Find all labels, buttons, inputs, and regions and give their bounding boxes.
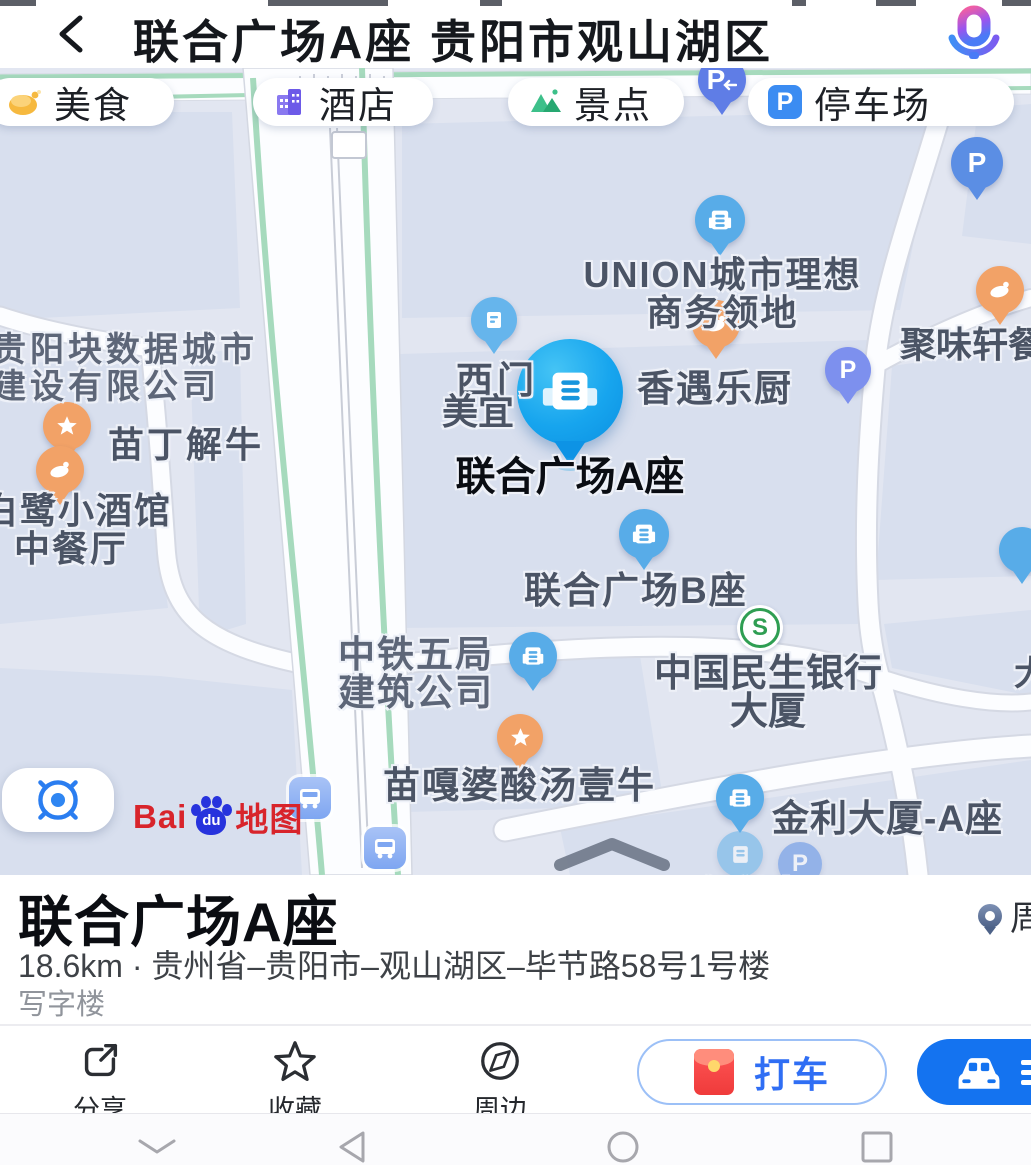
search-query-title[interactable]: 联合广场A座 贵阳市观山湖区 bbox=[133, 6, 773, 72]
hotel-building-icon bbox=[273, 85, 307, 119]
star-glyph bbox=[508, 725, 533, 750]
nearby-shortcut[interactable]: 周 bbox=[978, 891, 1031, 940]
building-glyph bbox=[728, 842, 753, 867]
share-icon bbox=[77, 1038, 123, 1084]
chip-food[interactable]: 美食 bbox=[0, 78, 174, 126]
building-glyph bbox=[630, 520, 658, 548]
route-navigate-button[interactable] bbox=[917, 1039, 1031, 1105]
map-label-miaoding: 苗丁解牛 bbox=[108, 416, 264, 468]
food-glyph bbox=[47, 457, 73, 483]
map-label-union-b: 联合广场B座 bbox=[524, 560, 748, 614]
map-label-jinli-faded: 金利大厦 bbox=[690, 866, 846, 875]
map-label-edge-partial: 大 bbox=[1014, 646, 1031, 695]
poi-pin-miaogapo[interactable] bbox=[497, 714, 543, 760]
map-label-zhongtie-2: 建筑公司 bbox=[338, 662, 494, 716]
android-nav-bar bbox=[0, 1113, 1031, 1165]
building-glyph bbox=[706, 206, 734, 234]
top-edge-artifact bbox=[268, 0, 388, 6]
poi-pin-juweixuan[interactable] bbox=[976, 266, 1024, 314]
poi-pin-union-b[interactable] bbox=[619, 509, 669, 559]
taxi-button[interactable]: 打车 bbox=[637, 1039, 887, 1105]
poi-pin-union[interactable] bbox=[695, 195, 745, 245]
poi-category: 写字楼 bbox=[18, 981, 105, 1023]
top-edge-artifact bbox=[792, 0, 806, 6]
route-text-cut bbox=[1021, 1060, 1031, 1085]
map-label-union-2: 商务领地 bbox=[545, 284, 900, 336]
red-packet-icon bbox=[694, 1049, 734, 1095]
map-label-egret-2: 中餐厅 bbox=[14, 520, 128, 572]
poi-pin-miaoding[interactable] bbox=[43, 402, 91, 450]
search-header: 联合广场A座 贵阳市观山湖区 bbox=[0, 0, 1031, 68]
food-chicken-icon bbox=[6, 85, 42, 119]
map-label-jinli-a: 金利大厦-A座 bbox=[772, 788, 1003, 842]
left-arrow-glyph bbox=[723, 78, 737, 92]
chip-scenic[interactable]: 景点 bbox=[508, 78, 684, 126]
compass-target-icon bbox=[29, 771, 87, 829]
scenic-mountain-icon bbox=[528, 85, 562, 119]
chip-hotel[interactable]: 酒店 bbox=[253, 78, 433, 126]
parking-pin[interactable]: P bbox=[825, 347, 871, 393]
location-pin-icon bbox=[978, 904, 1002, 928]
bus-glyph bbox=[372, 835, 398, 861]
baidu-paw-icon: du bbox=[189, 796, 233, 838]
baidu-maps-logo: Bai du 地图 bbox=[133, 796, 303, 838]
back-icon[interactable] bbox=[48, 10, 96, 58]
nav-hide-button[interactable] bbox=[120, 1122, 194, 1165]
star-icon bbox=[272, 1038, 318, 1084]
nav-home-button[interactable] bbox=[594, 1118, 652, 1165]
voice-mic-icon[interactable] bbox=[942, 4, 1004, 66]
map-label-meiyi: 美宜 bbox=[442, 383, 514, 435]
food-glyph bbox=[987, 277, 1013, 303]
parking-pin[interactable]: P bbox=[951, 137, 1003, 189]
map-canvas[interactable]: P P bbox=[0, 68, 1031, 875]
baidu-maps-app: { "header": { "title": "联合广场A座 贵阳市观山湖区" … bbox=[0, 0, 1031, 1165]
logo-bai: Bai bbox=[133, 798, 187, 836]
poi-pin-zhongtie[interactable] bbox=[509, 632, 557, 680]
map-label-minsheng-2: 大厦 bbox=[648, 680, 888, 735]
action-bar: 分享 收藏 周边 打车 bbox=[0, 1024, 1031, 1115]
parking-p-icon: P bbox=[768, 85, 802, 119]
map-label-main-poi: 联合广场A座 bbox=[425, 444, 715, 502]
chip-parking[interactable]: P 停车场 bbox=[748, 78, 1014, 126]
building-glyph bbox=[520, 643, 546, 669]
top-edge-artifact bbox=[1002, 0, 1031, 6]
nav-recents-button[interactable] bbox=[848, 1118, 906, 1165]
logo-map-word: 地图 bbox=[235, 793, 303, 841]
map-label-xiangyu: 香遇乐厨 bbox=[637, 358, 793, 412]
top-edge-artifact bbox=[480, 0, 502, 6]
poi-pin-ximen[interactable] bbox=[471, 297, 517, 343]
building-glyph bbox=[727, 785, 753, 811]
poi-detail-sheet[interactable]: 联合广场A座 周 18.6km · 贵州省–贵阳市–观山湖区–毕节路58号1号楼… bbox=[0, 875, 1031, 1024]
office-building-glyph bbox=[539, 361, 601, 423]
compass-icon bbox=[477, 1038, 523, 1084]
bus-stop-icon[interactable] bbox=[364, 827, 406, 869]
top-edge-artifact bbox=[876, 0, 916, 6]
poi-pin-jinli-a[interactable] bbox=[716, 774, 764, 822]
map-label-guiyang-2: 建设有限公司 bbox=[0, 359, 220, 408]
top-edge-artifact bbox=[0, 0, 36, 6]
poi-distance-address: 18.6km · 贵州省–贵阳市–观山湖区–毕节路58号1号楼 bbox=[18, 941, 770, 987]
nav-back-button[interactable] bbox=[326, 1122, 378, 1165]
map-label-miaogapo: 苗嘎婆酸汤壹牛 bbox=[383, 755, 656, 809]
star-glyph bbox=[54, 413, 80, 439]
gate-glyph bbox=[482, 308, 506, 332]
map-label-juweixuan: 聚味轩餐 bbox=[900, 316, 1031, 368]
car-icon bbox=[953, 1050, 1005, 1094]
locate-me-button[interactable] bbox=[2, 768, 114, 832]
